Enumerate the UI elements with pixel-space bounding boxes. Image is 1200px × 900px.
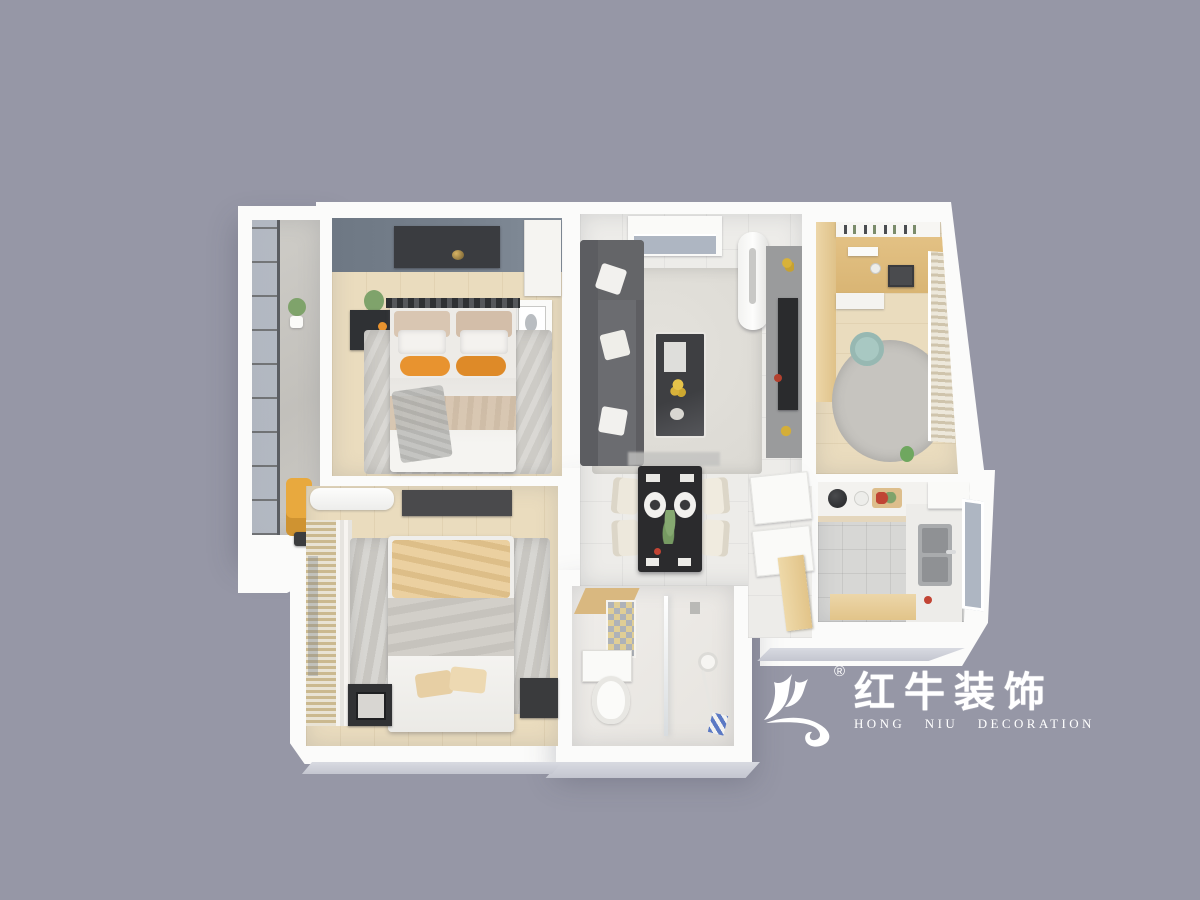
sink-faucet	[946, 550, 956, 554]
master-plant-icon	[364, 290, 384, 312]
dining-chair-right-1	[700, 477, 730, 515]
bedroom2-glass-sliver	[308, 556, 318, 676]
shower-head	[698, 652, 718, 672]
bedroom2-nightstand-left	[348, 684, 392, 726]
balcony-plant-pot	[290, 316, 303, 328]
bedroom2-pillow-1	[415, 670, 454, 699]
cutting-board-veggies	[876, 492, 898, 504]
balcony-plant-icon	[288, 298, 306, 316]
bedroom2-duvet-gray	[388, 598, 514, 656]
ac-vent-slot	[749, 248, 756, 304]
tv-decor-sphere	[452, 250, 464, 260]
kitchen-window-glass	[962, 498, 984, 611]
kitchen-dishes	[854, 491, 869, 506]
logo-text-block: 红牛装饰 HONG NIU DECORATION	[854, 672, 1012, 732]
hongniu-bull-logo-icon: ®	[762, 670, 848, 750]
living-sofa	[580, 240, 644, 466]
dining-napkin-2	[680, 474, 694, 482]
master-tv-panel	[394, 226, 500, 268]
kitchen-red-accent	[924, 596, 932, 604]
pillow-orange-right	[456, 356, 506, 376]
dining-sideboard	[628, 452, 720, 466]
dining-chair-left-2	[611, 519, 640, 556]
coffee-table-paper	[664, 342, 686, 372]
master-bed	[390, 300, 516, 472]
sofa-pillow-2	[599, 329, 631, 361]
bedroom2-pillow-2	[449, 666, 487, 694]
dining-centerpiece-plant	[662, 510, 678, 544]
kitchen-floor	[818, 482, 970, 622]
bedroom2-ceiling-vent	[402, 490, 512, 516]
pillow-white-left	[398, 330, 446, 354]
tv-cabinet	[766, 246, 802, 458]
bathroom-blue-decor	[708, 712, 728, 735]
sink-basin-top	[922, 528, 948, 553]
bathroom-floor	[572, 586, 734, 746]
master-bedroom-floor	[332, 218, 562, 476]
bedroom2-wall-face	[302, 762, 562, 774]
sofa-pillow-3	[598, 406, 628, 436]
study-plant-small	[900, 446, 914, 462]
dining-chair-left-1	[610, 477, 640, 515]
shelf-books	[844, 225, 924, 234]
dining-dish-small-1	[646, 558, 659, 566]
hall-cabinet-upper	[750, 471, 813, 525]
bedroom2-blanket-beige	[392, 540, 510, 598]
bedroom2-bed	[388, 536, 514, 732]
logo-name-chinese: 红牛装饰	[854, 672, 1012, 713]
dining-dish-small-2	[678, 558, 691, 566]
study-chair	[850, 332, 884, 366]
bathroom-wall-face	[546, 762, 760, 778]
desk-laptop	[888, 265, 914, 287]
coffee-table	[654, 332, 706, 438]
toilet-bowl	[592, 676, 630, 724]
balcony-window-glass	[252, 220, 278, 535]
kitchen-cutting-board	[872, 488, 902, 508]
study-shelf	[836, 222, 940, 237]
study-floor	[816, 222, 958, 474]
bathroom-vent	[690, 602, 700, 614]
television	[778, 298, 798, 410]
bedroom2-ac-unit	[310, 488, 394, 510]
coffee-table-dish	[670, 408, 684, 420]
tv-decor-gold-bottom	[778, 422, 794, 440]
logo-name-english: HONG NIU DECORATION	[854, 716, 1012, 732]
sofa-backrest	[580, 240, 598, 466]
hongniu-logo: ® 红牛装饰 HONG NIU DECORATION	[762, 660, 1012, 752]
dining-table	[638, 466, 702, 572]
shower-rod	[701, 670, 713, 716]
sink-basin-bottom	[922, 557, 948, 582]
air-conditioner	[738, 232, 768, 330]
scene-background: ® 红牛装饰 HONG NIU DECORATION	[0, 0, 1200, 900]
nightstand-photo-frame	[356, 692, 386, 720]
pillow-white-right	[460, 330, 508, 354]
tv-decor-gold-top	[780, 254, 794, 272]
dining-chair-right-2	[701, 519, 730, 557]
living-window-glass	[634, 234, 716, 254]
bedroom2-nightstand-right	[520, 678, 558, 718]
kitchen-kettle	[828, 489, 847, 508]
pillow-orange-left	[400, 356, 450, 376]
bed-headboard	[386, 298, 520, 308]
desk-papers	[848, 247, 878, 256]
study-wardrobe-strip	[816, 222, 836, 402]
dining-napkin-1	[646, 474, 660, 482]
study-drawer-unit	[836, 293, 884, 309]
bed-throw-gray	[391, 385, 453, 464]
kitchen-sink	[918, 524, 952, 586]
dining-red-accent	[654, 548, 661, 555]
bedroom2-floor	[306, 486, 558, 746]
registered-mark: ®	[834, 664, 845, 679]
coffee-table-flowers	[670, 378, 686, 400]
shower-glass-panel	[664, 596, 668, 736]
desk-mug	[870, 263, 881, 274]
balcony-window-frame	[277, 220, 280, 535]
master-wardrobe	[524, 220, 561, 296]
tv-decor-red-dot	[774, 374, 782, 382]
kitchen-lower-wood-cabinet	[830, 594, 916, 620]
